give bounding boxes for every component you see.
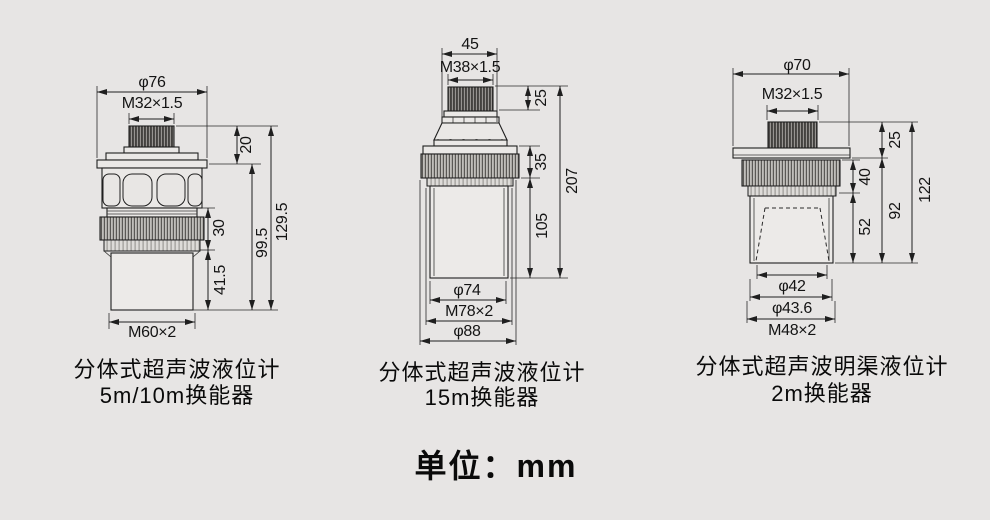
fig1-ring-height-label: 30 (211, 219, 229, 236)
fig2-lower-height-label: 105 (534, 213, 552, 239)
figure-5m10m-lineart (97, 86, 278, 329)
fig3-horn-height-label: 52 (857, 218, 875, 235)
fig3-dia-top-label: φ70 (783, 57, 810, 75)
fig1-cap-height-label: 20 (238, 136, 256, 153)
fig1-thread-top-label: M32×1.5 (122, 95, 183, 113)
fig3-total-height-label: 122 (917, 177, 935, 203)
fig3-cap-height-label: 25 (887, 131, 905, 148)
fig3-thread-top-label: M32×1.5 (762, 86, 823, 104)
figure-2m-lineart (733, 68, 918, 323)
fig2-dia-body-label: φ74 (453, 282, 480, 300)
unit-label: 单位：mm (415, 441, 578, 487)
fig3-thread-bottom-label: M48×2 (768, 322, 816, 340)
fig1-total-height-label: 129.5 (274, 203, 292, 242)
fig3-caption-line2: 2m换能器 (771, 376, 873, 408)
fig3-dia-horn-label: φ42 (778, 278, 805, 296)
fig2-top-width-label: 45 (461, 36, 478, 54)
fig2-cap-height-label: 25 (533, 89, 551, 106)
fig2-thread-bottom-label: M78×2 (445, 303, 493, 321)
fig2-total-height-label: 207 (564, 168, 582, 194)
fig2-ring-height-label: 35 (533, 153, 551, 170)
fig3-mid-height-label: 92 (887, 202, 905, 219)
fig1-caption-line2: 5m/10m换能器 (100, 378, 254, 410)
fig1-dia-top-label: φ76 (138, 74, 165, 92)
fig2-dia-outer-label: φ88 (453, 323, 480, 341)
fig1-thread-bottom-label: M60×2 (128, 324, 176, 342)
fig3-dia-inner-label: φ43.6 (772, 300, 812, 318)
fig1-lower-height-label: 41.5 (212, 265, 230, 295)
fig1-mid-height-label: 99.5 (254, 228, 272, 258)
fig2-thread-top-label: M38×1.5 (440, 59, 501, 77)
fig2-caption-line2: 15m换能器 (425, 380, 540, 412)
spec-sheet: φ76 M32×1.5 20 30 41.5 99.5 129.5 M60×2 … (0, 0, 990, 520)
fig3-ring-height-label: 40 (857, 168, 875, 185)
